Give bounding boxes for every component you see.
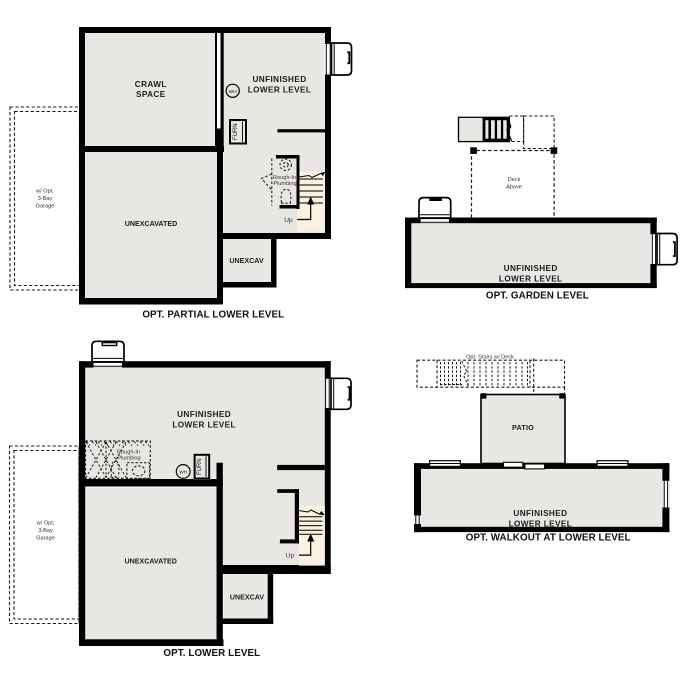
svg-text:OPT. LOWER LEVEL: OPT. LOWER LEVEL	[163, 648, 260, 659]
svg-text:UNEXCAVATED: UNEXCAVATED	[124, 557, 176, 565]
svg-text:w/ Opt.: w/ Opt.	[36, 521, 55, 527]
svg-text:LOWER LEVEL: LOWER LEVEL	[248, 85, 312, 94]
svg-text:3-Bay: 3-Bay	[38, 196, 53, 202]
svg-text:OPT. GARDEN LEVEL: OPT. GARDEN LEVEL	[486, 291, 589, 302]
svg-text:Rough-In: Rough-In	[273, 175, 296, 181]
svg-text:SPACE: SPACE	[136, 90, 166, 99]
svg-text:LOWER LEVEL: LOWER LEVEL	[499, 275, 563, 284]
svg-text:UNEXCAVATED: UNEXCAVATED	[125, 220, 177, 228]
svg-text:Above: Above	[506, 185, 522, 191]
svg-text:WH: WH	[229, 89, 238, 95]
svg-text:Plumbing: Plumbing	[273, 181, 296, 187]
svg-text:UNFINISHED: UNFINISHED	[177, 410, 231, 419]
svg-text:Garage: Garage	[36, 204, 55, 210]
svg-text:Garage: Garage	[36, 536, 55, 542]
svg-text:UNFINISHED: UNFINISHED	[504, 264, 558, 273]
svg-text:CRAWL: CRAWL	[135, 80, 167, 89]
svg-text:WH: WH	[179, 470, 188, 476]
svg-text:FURN: FURN	[233, 123, 239, 140]
svg-text:Up: Up	[286, 553, 295, 560]
svg-text:Deck: Deck	[508, 177, 521, 183]
svg-text:Plumbing: Plumbing	[117, 455, 140, 461]
svg-text:w/ Opt.: w/ Opt.	[35, 189, 54, 195]
svg-text:Up: Up	[284, 217, 293, 224]
svg-text:UNFINISHED: UNFINISHED	[513, 509, 567, 518]
svg-text:LOWER LEVEL: LOWER LEVEL	[172, 420, 236, 429]
svg-text:LOWER LEVEL: LOWER LEVEL	[509, 519, 573, 528]
svg-text:OPT. PARTIAL LOWER LEVEL: OPT. PARTIAL LOWER LEVEL	[142, 310, 284, 321]
svg-text:UNFINISHED: UNFINISHED	[252, 75, 306, 84]
svg-text:3-Bay: 3-Bay	[38, 528, 53, 534]
svg-text:UNEXCAV: UNEXCAV	[230, 594, 264, 602]
svg-text:UNEXCAV: UNEXCAV	[229, 257, 263, 265]
svg-text:FURN: FURN	[197, 458, 203, 475]
svg-text:PATIO: PATIO	[512, 423, 534, 432]
svg-text:OPT. WALKOUT AT LOWER LEVEL: OPT. WALKOUT AT LOWER LEVEL	[466, 532, 631, 543]
